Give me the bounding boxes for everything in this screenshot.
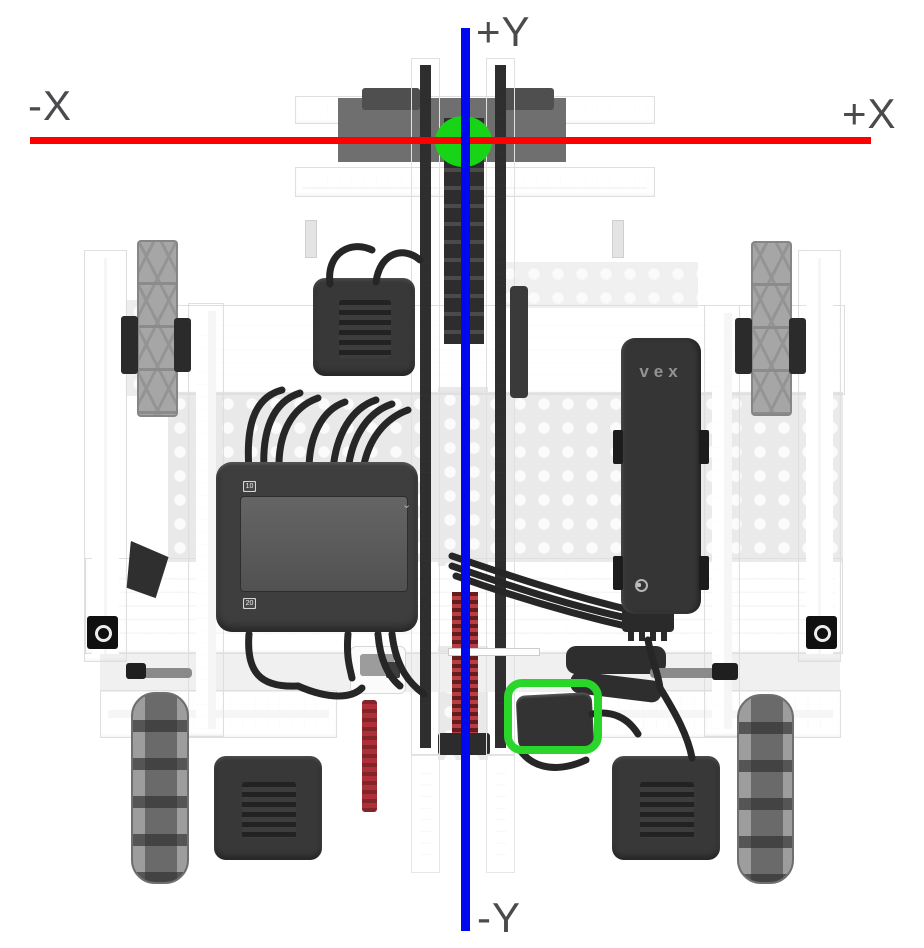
diagram-canvas: 12345678910 11121314151617181920 ⌄ VEX	[0, 0, 924, 948]
sensor-highlight-box	[504, 679, 602, 754]
cable-bundle	[452, 566, 636, 620]
brain-logo-chevron: ⌄	[402, 498, 411, 511]
axis-label-neg-y: -Y	[477, 894, 521, 942]
battery-clip	[613, 556, 623, 590]
cable	[330, 247, 372, 284]
v5-brain: 12345678910 11121314151617181920 ⌄	[216, 462, 418, 632]
cable	[376, 253, 420, 282]
connector-prong	[639, 630, 645, 641]
axis-label-pos-x: +X	[842, 90, 897, 138]
battery-clip	[699, 430, 709, 464]
battery-clip	[699, 556, 709, 590]
cable	[347, 634, 352, 678]
battery-level-dot	[637, 583, 641, 587]
battery-clip	[613, 430, 623, 464]
axis-label-neg-x: -X	[28, 82, 72, 130]
connector-prong	[661, 630, 667, 641]
y-axis-line	[461, 28, 470, 931]
brain-screen	[240, 496, 408, 592]
brain-port: 20	[243, 598, 256, 609]
cable	[660, 688, 692, 758]
connector-prong	[628, 630, 634, 641]
cable	[249, 634, 298, 686]
brain-port: 10	[243, 481, 256, 492]
v5-battery: VEX	[621, 338, 701, 614]
x-axis-line	[30, 137, 871, 144]
cable	[298, 686, 362, 696]
cable	[648, 640, 660, 688]
axis-label-pos-y: +Y	[476, 8, 531, 56]
vex-logo: VEX	[621, 362, 701, 382]
